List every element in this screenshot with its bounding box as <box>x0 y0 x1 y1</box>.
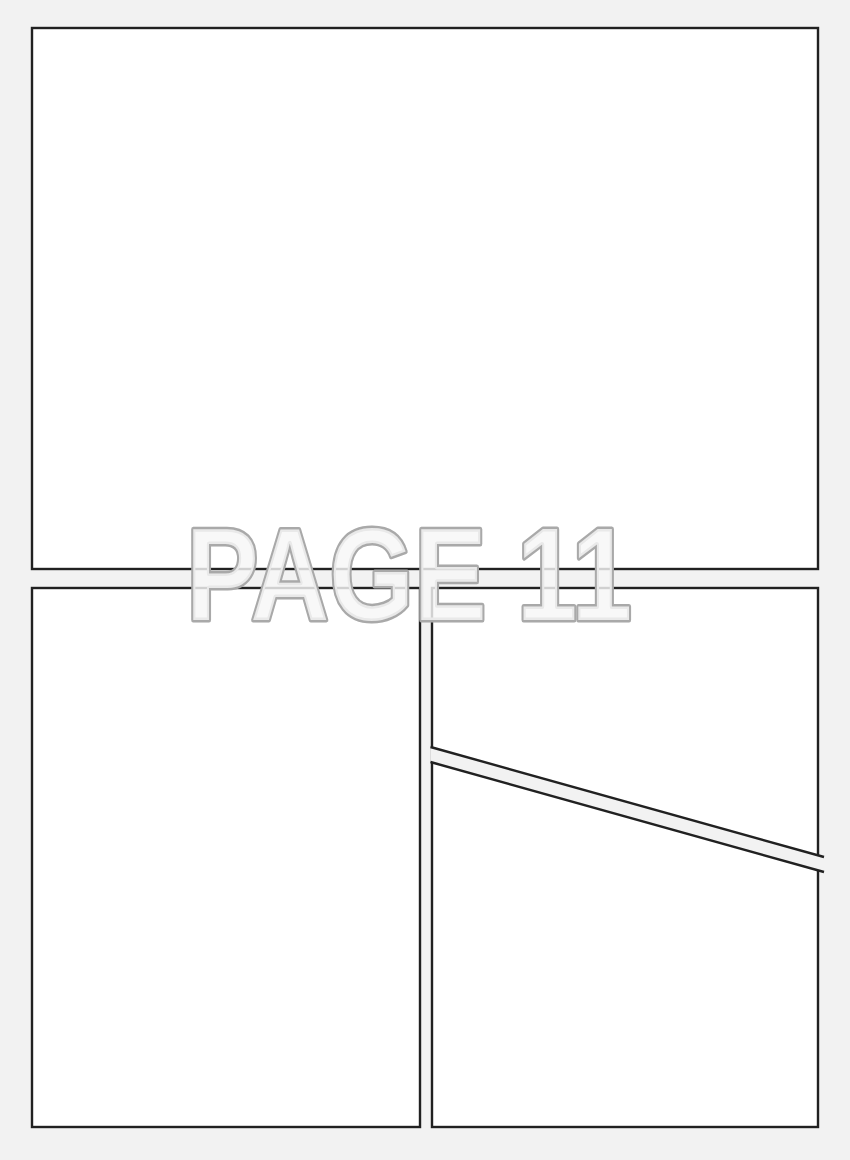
panel-bottom-right-block <box>432 588 818 1127</box>
panel-top <box>32 28 818 569</box>
comic-page-canvas: PAGE 11 <box>0 0 850 1160</box>
comic-page-template: PAGE 11 <box>0 0 850 1160</box>
page-number-watermark: PAGE 11 <box>186 501 632 648</box>
panel-bottom-left <box>32 588 420 1127</box>
